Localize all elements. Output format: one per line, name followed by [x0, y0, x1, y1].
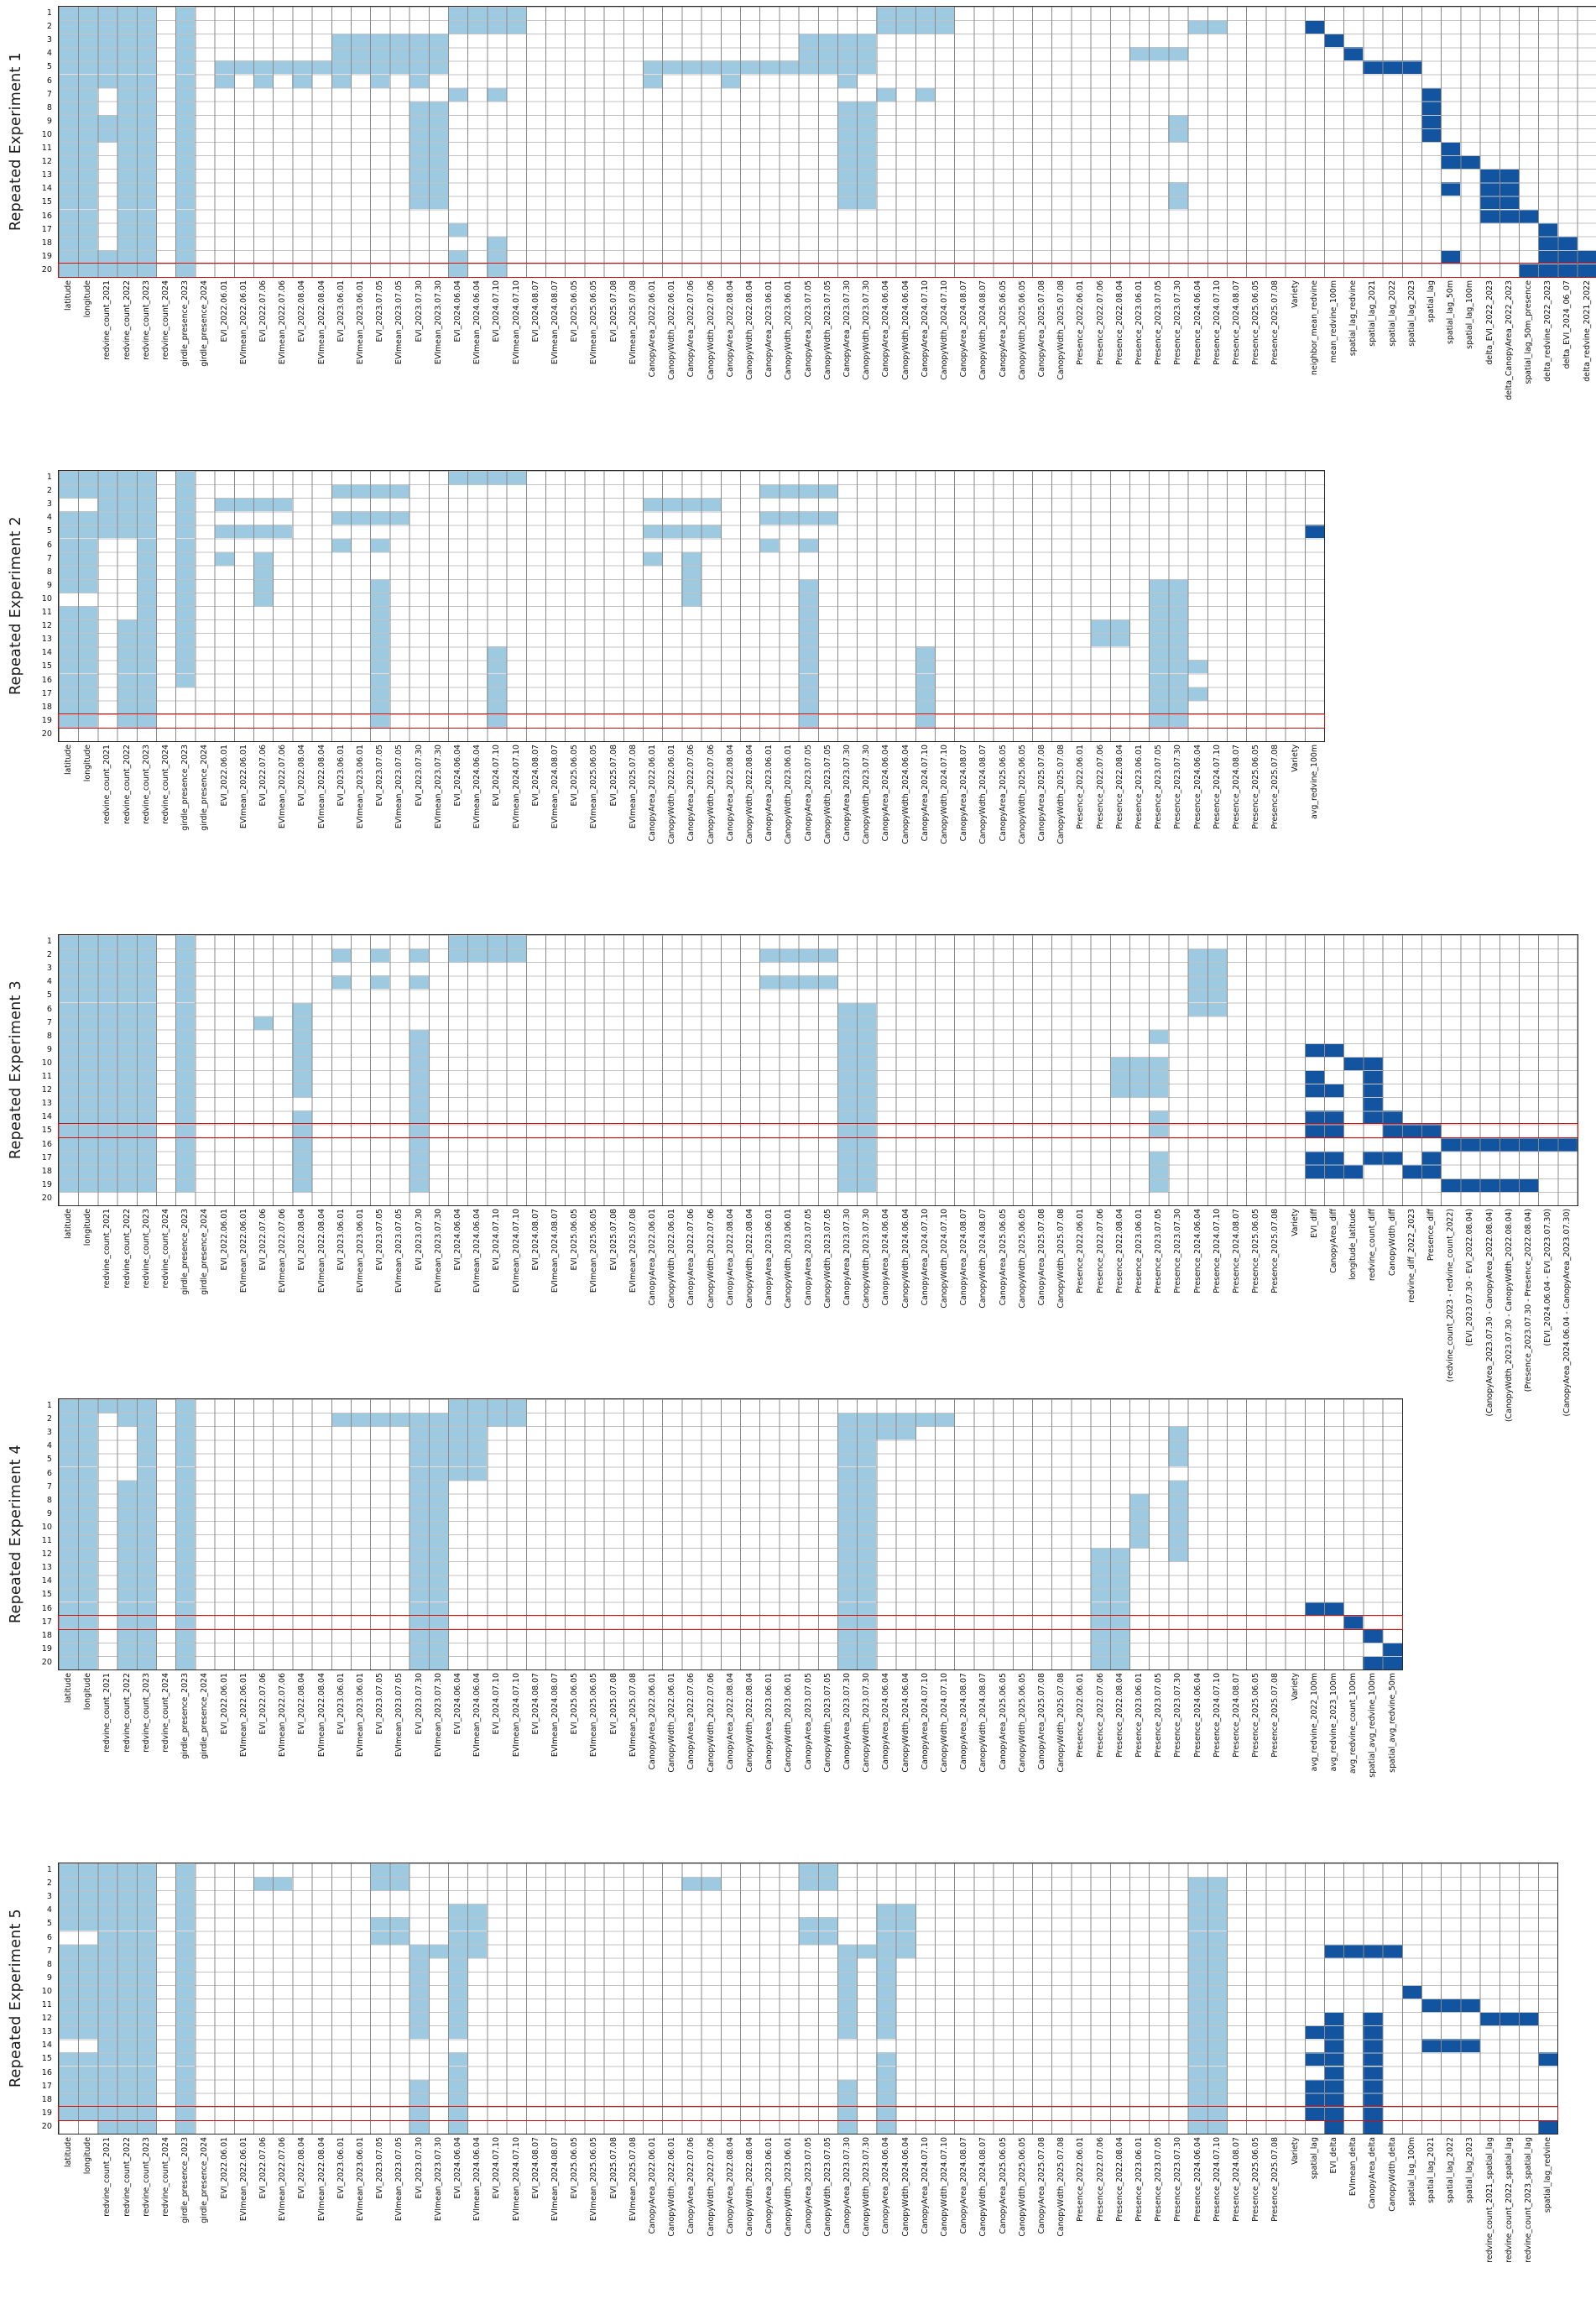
column-label: spatial_lag_2021: [1421, 2137, 1441, 2203]
heatmap-cell-light: [253, 75, 273, 88]
heatmap-cell-light: [915, 646, 935, 660]
heatmap-cell-dark: [1441, 1138, 1577, 1152]
column-label-text: EVImean_2022.07.06: [278, 1673, 287, 1757]
column-label-text: CanopyArea_2025.07.08: [1037, 2137, 1046, 2234]
column-label: CanopyArea_delta: [1363, 2137, 1382, 2208]
heatmap-cell-light: [59, 606, 97, 619]
row-label: 3: [47, 34, 52, 47]
column-label: EVI_2023.06.01: [331, 2137, 351, 2198]
column-label-text: CanopyArea_2025.06.05: [999, 2137, 1008, 2234]
column-label-text: Presence_2022.07.06: [1096, 2137, 1105, 2222]
column-label: CanopyArea_2024.06.04: [876, 1673, 895, 1769]
column-label: CanopyWdth_2023.07.30: [857, 1673, 876, 1773]
heatmap-cell-light: [59, 660, 97, 673]
heatmap-cell-light: [837, 2120, 857, 2134]
heatmap-cell-dark: [1363, 2107, 1382, 2120]
column-label: EVI_diff: [1305, 1209, 1324, 1238]
heatmap-cell-light: [175, 579, 195, 593]
panel-title-text: Repeated Experiment 2: [8, 516, 24, 695]
column-label: EVImean_2022.08.04: [312, 745, 331, 828]
heatmap-cell-light: [292, 1165, 311, 1178]
heatmap-cell-light: [837, 1643, 876, 1656]
heatmap-cell-light: [1188, 1904, 1227, 1917]
column-label: CanopyArea_2023.07.05: [799, 1673, 818, 1769]
column-label-text: EVImean_2024.07.10: [512, 2137, 521, 2221]
heatmap-cell-light: [1168, 182, 1187, 196]
heatmap-cell-light: [59, 1575, 97, 1588]
heatmap-cell-dark: [1363, 1110, 1401, 1124]
heatmap-cell-light: [215, 498, 293, 511]
column-label-text: Presence_2022.06.01: [1076, 1209, 1085, 1293]
column-label: CanopyWdth_2025.07.08: [1051, 280, 1071, 380]
column-label: CanopyArea_2022.08.04: [721, 280, 740, 377]
column-label-text: Presence_2024.08.07: [1232, 1673, 1241, 1758]
column-label-text: CanopyArea_2024.06.04: [881, 745, 890, 841]
heatmap-cell-light: [175, 1440, 195, 1453]
heatmap-cell-light: [117, 88, 156, 102]
column-label: EVI_2023.07.30: [409, 1673, 429, 1734]
column-label-text: spatial_lag: [1426, 280, 1436, 322]
column-label-text: EVI_2022.07.06: [258, 2137, 268, 2198]
column-label-text: EVImean_2022.06.01: [239, 1673, 248, 1757]
column-label: EVImean_2025.07.08: [623, 745, 643, 828]
heatmap-cell-light: [175, 962, 195, 975]
column-label-text: CanopyArea_2022.06.01: [648, 280, 657, 377]
column-label: spatial_lag_redvine: [1343, 280, 1363, 356]
heatmap-cell-dark: [1421, 1999, 1480, 2012]
column-label: CanopyWdth_2024.07.10: [935, 280, 954, 380]
heatmap-cell-light: [448, 2120, 467, 2134]
row-label: 10: [42, 1985, 52, 1999]
heatmap-cell-light: [59, 1440, 97, 1453]
column-label: EVI_2023.06.01: [331, 745, 351, 806]
column-label-text: (redvine_count_2023 - redvine_count_2022…: [1446, 1209, 1455, 1382]
heatmap-cell-light: [175, 250, 195, 264]
column-label-text: EVI_2023.06.01: [336, 1673, 346, 1734]
column-label-text: EVI_2024.07.10: [492, 1209, 501, 1270]
panel-title-text: Repeated Experiment 3: [8, 980, 24, 1159]
heatmap-cell-light: [1149, 1165, 1168, 1178]
column-label: Presence_2024.08.07: [1227, 1209, 1246, 1293]
heatmap-cell-light: [837, 1467, 876, 1481]
heatmap-cell-light: [1168, 1548, 1187, 1561]
heatmap-cell-dark: [1480, 182, 1519, 196]
heatmap-cell-light: [59, 687, 97, 701]
heatmap-cell-dark: [1305, 525, 1324, 538]
column-label-text: EVImean_2022.08.04: [317, 2137, 326, 2221]
heatmap-cell-light: [137, 593, 156, 606]
column-label: latitude: [59, 280, 78, 311]
column-label: Presence_2022.08.04: [1110, 2137, 1129, 2222]
column-label: longitude: [78, 1209, 97, 1246]
heatmap-cell-light: [175, 88, 195, 102]
column-label-text: CanopyArea_2022.07.06: [686, 280, 696, 377]
heatmap-cell-light: [409, 1507, 448, 1521]
column-label: CanopyWdth_2023.07.05: [818, 745, 837, 844]
heatmap-cell-light: [253, 579, 273, 593]
heatmap-cell-dark: [1538, 2120, 1557, 2134]
heatmap-cell-light: [799, 606, 818, 619]
heatmap-cell-light: [175, 142, 195, 155]
heatmap-cell-dark: [1305, 1602, 1343, 1616]
column-label-text: CanopyWdth_2025.06.05: [1018, 1673, 1027, 1773]
column-label-text: CanopyWdth_2022.07.06: [707, 1673, 716, 1773]
column-label: Presence_2024.06.04: [1188, 745, 1207, 829]
heatmap-cell-light: [370, 75, 389, 88]
column-label-text: CanopyWdth_2023.07.30: [862, 745, 871, 844]
heatmap-cell-light: [799, 714, 818, 728]
row-axis: 1234567891011121314151617181920: [35, 935, 57, 1205]
row-label: 17: [42, 687, 52, 701]
heatmap-cell-light: [97, 2120, 156, 2134]
column-label-text: EVImean_2024.08.07: [550, 745, 560, 828]
column-label-text: redvine_count_2022: [123, 2137, 132, 2217]
heatmap-cell-light: [876, 1972, 895, 1985]
heatmap-cell-light: [409, 1467, 488, 1481]
column-label-text: EVI_2023.07.30: [415, 280, 424, 342]
heatmap-cell-light: [837, 1481, 876, 1494]
heatmap-cell-light: [409, 1138, 429, 1152]
column-label: EVI_2025.07.08: [604, 1209, 623, 1270]
column-label: EVImean_2025.06.05: [584, 1209, 603, 1293]
column-label: CanopyWdth_2022.07.06: [702, 280, 721, 380]
column-label-text: (CanopyArea_2023.07.30 - CanopyArea_2022…: [1485, 1209, 1494, 1416]
heatmap-cell-light: [175, 1453, 195, 1466]
heatmap-cell-light: [837, 1453, 876, 1466]
column-label-text: CanopyWdth_2022.06.01: [667, 1209, 676, 1309]
column-label-text: EVImean_2023.07.05: [394, 1209, 404, 1293]
column-label: avg_redvine_100m: [1305, 745, 1324, 819]
column-label-text: longitude: [83, 280, 92, 317]
heatmap-cell-light: [409, 1643, 448, 1656]
column-label-text: EVI_2022.08.04: [297, 1673, 306, 1734]
column-label: CanopyArea_2025.06.05: [994, 1673, 1013, 1769]
column-label-text: Presence_2025.06.05: [1251, 1209, 1260, 1293]
heatmap-cell-light: [97, 2039, 156, 2052]
column-label: girdle_presence_2023: [175, 745, 195, 831]
panel-title-text: Repeated Experiment 1: [8, 52, 24, 231]
heatmap-cell-light: [409, 142, 448, 155]
heatmap-cell-light: [681, 579, 701, 593]
heatmap-cell-light: [409, 1426, 488, 1440]
column-label-text: EVI_2024.08.07: [531, 1209, 540, 1270]
heatmap-cell-light: [837, 102, 876, 115]
column-label-text: EVImean_2025.06.05: [589, 1673, 598, 1757]
column-label: Presence_2024.06.04: [1188, 1673, 1207, 1758]
heatmap-cell-light: [59, 633, 97, 646]
heatmap-cell-dark: [1363, 1629, 1382, 1643]
heatmap-cell-light: [370, 714, 389, 728]
column-label: avg_redvine_count_100m: [1343, 1673, 1363, 1774]
heatmap-cell-light: [292, 1178, 311, 1192]
heatmap-cell-light: [799, 539, 818, 552]
column-label-text: CanopyWdth_2024.07.10: [940, 745, 949, 844]
heatmap-cell-dark: [1343, 1057, 1382, 1070]
column-axis: latitudelongituderedvine_count_2021redvi…: [59, 280, 1596, 471]
heatmap-cell-light: [59, 2107, 156, 2120]
heatmap-cell-light: [97, 498, 156, 511]
heatmap-cell-light: [1188, 1917, 1227, 1931]
column-label: EVImean_2023.07.30: [429, 1209, 448, 1293]
column-label-text: girdle_presence_2024: [200, 745, 209, 831]
column-label: spatial_lag_2021: [1363, 280, 1382, 347]
column-label-text: Presence_2024.08.07: [1232, 1209, 1241, 1293]
column-label-text: CanopyWdth_2022.06.01: [667, 2137, 676, 2237]
heatmap-cell-light: [175, 182, 195, 196]
column-label-text: Presence_2023.07.30: [1173, 280, 1182, 365]
column-label-text: spatial_lag_100m: [1407, 2137, 1416, 2206]
column-label-text: spatial_lag_redvine: [1543, 2137, 1552, 2213]
column-label: CanopyWdth_2024.06.04: [896, 1673, 915, 1773]
heatmap-cell-light: [837, 1616, 876, 1629]
column-label-text: CanopyWdth_diff: [1388, 1209, 1397, 1276]
heatmap-cell-light: [837, 1138, 876, 1152]
row-label: 18: [42, 701, 52, 714]
column-label: (CanopyArea_2024.06.04 - CanopyArea_2023…: [1557, 1209, 1577, 1416]
column-label-text: CanopyWdth_2024.08.07: [978, 745, 988, 844]
column-label: Variety: [1286, 2137, 1305, 2165]
heatmap-cell-light: [409, 1084, 429, 1097]
column-label: CanopyWdth_2024.08.07: [973, 2137, 993, 2237]
column-label: Variety: [1286, 1673, 1305, 1701]
heatmap-cell-dark: [1324, 2012, 1343, 2025]
column-label-text: CanopyArea_2023.07.05: [804, 1209, 813, 1305]
column-label: Presence_2023.07.05: [1149, 2137, 1168, 2222]
heatmap-cell-light: [837, 169, 876, 182]
column-label: EVI_2025.07.08: [604, 280, 623, 342]
column-label: EVI_2024.08.07: [526, 1209, 545, 1270]
heatmap-cell-light: [370, 619, 389, 633]
heatmap-cell-light: [1149, 579, 1187, 593]
column-label-text: Presence_2022.07.06: [1096, 280, 1105, 365]
heatmap-cell-light: [1188, 1003, 1227, 1016]
heatmap-cell-light: [837, 1043, 876, 1057]
column-label: Presence_2025.06.05: [1246, 1673, 1265, 1758]
heatmap-cell-light: [837, 1945, 915, 1958]
column-label-text: CanopyWdth_2022.08.04: [745, 1673, 754, 1773]
column-label: girdle_presence_2023: [175, 2137, 195, 2223]
heatmap-cell-light: [175, 2012, 195, 2025]
heatmap-cell-light: [175, 7, 195, 20]
column-label: EVI_2023.07.05: [370, 1673, 389, 1734]
column-label: redvine_count_2021: [97, 745, 117, 824]
row-label: 11: [42, 142, 52, 155]
column-label-text: latitude: [64, 2137, 73, 2167]
column-label: EVI_2023.06.01: [331, 1209, 351, 1270]
heatmap-cell-light: [137, 606, 156, 619]
heatmap-cell-light: [175, 606, 195, 619]
heatmap-cell-light: [409, 1030, 429, 1043]
row-axis: 1234567891011121314151617181920: [35, 1399, 57, 1669]
column-label: CanopyArea_2022.07.06: [681, 1673, 701, 1769]
column-axis: latitudelongituderedvine_count_2021redvi…: [59, 1673, 1402, 1863]
heatmap-cell-light: [1149, 1030, 1168, 1043]
column-label: CanopyArea_2025.06.05: [994, 280, 1013, 377]
column-label: CanopyArea_2023.07.30: [837, 2137, 857, 2234]
heatmap-cell-dark: [1421, 115, 1441, 128]
column-label: CanopyWdth_2025.07.08: [1051, 1673, 1071, 1773]
column-label: redvine_count_2021: [97, 1673, 117, 1753]
column-label-text: EVImean_2024.07.10: [512, 1209, 521, 1293]
column-label: CanopyArea_2023.07.05: [799, 280, 818, 377]
column-label: spatial_lag_2023: [1460, 2137, 1479, 2203]
heatmap-cell-light: [1149, 646, 1187, 660]
column-label-text: EVI_2024.08.07: [531, 745, 540, 806]
heatmap-cell-light: [409, 169, 448, 182]
heatmap-cell-light: [59, 1124, 156, 1137]
heatmap-cell-light: [59, 155, 97, 169]
heatmap-cell-light: [59, 102, 97, 115]
heatmap-cell-light: [59, 1534, 97, 1548]
column-label: EVI_2022.07.06: [253, 2137, 273, 2198]
heatmap-cell-light: [59, 1958, 156, 1972]
heatmap-cell-light: [117, 1616, 156, 1629]
heatmap-cell-light: [215, 525, 293, 538]
heatmap-cell-light: [837, 1030, 876, 1043]
column-label: CanopyArea_2022.07.06: [681, 280, 701, 377]
column-label: Variety: [1286, 745, 1305, 772]
column-label-text: neighbor_mean_redvine: [1310, 280, 1319, 375]
row-label: 8: [47, 102, 52, 115]
heatmap-cell-light: [59, 1003, 156, 1016]
heatmap-cell-light: [409, 1958, 429, 1972]
column-label-text: delta_redvine_2021_2022: [1583, 280, 1592, 382]
column-label: EVImean_2023.06.01: [351, 1209, 370, 1293]
heatmap-cell-light: [759, 511, 837, 525]
heatmap-cell-light: [137, 566, 156, 579]
column-label: CanopyArea_2022.06.01: [643, 2137, 662, 2234]
column-label-text: CanopyArea_2024.07.10: [921, 745, 930, 841]
column-label-text: avg_redvine_2023_100m: [1329, 1673, 1338, 1771]
heatmap-cell-light: [837, 155, 876, 169]
heatmap-cell-light: [1188, 1958, 1227, 1972]
column-label-text: CanopyWdth_2025.07.08: [1056, 280, 1066, 380]
heatmap-cell-light: [409, 1521, 448, 1534]
column-label-text: spatial_lag_2023: [1465, 2137, 1474, 2203]
column-label-text: CanopyArea_2022.07.06: [686, 1673, 696, 1769]
heatmap-cell-light: [59, 1110, 156, 1124]
column-label-text: CanopyWdth_2024.07.10: [940, 2137, 949, 2237]
heatmap-cell-light: [59, 1399, 156, 1413]
column-label: mean_redvine_100m: [1324, 280, 1343, 363]
heatmap-cell-light: [117, 182, 156, 196]
heatmap-cell-light: [292, 1030, 311, 1043]
heatmap-cell-light: [837, 1440, 876, 1453]
heatmap-cell-light: [175, 155, 195, 169]
column-label-text: EVI_2024.07.10: [492, 745, 501, 806]
heatmap-cell-light: [409, 1629, 448, 1643]
heatmap-cell-dark: [1305, 2093, 1343, 2107]
heatmap-cell-light: [1188, 948, 1227, 962]
heatmap-cell-light: [759, 484, 837, 498]
heatmap-cell-light: [59, 1165, 156, 1178]
column-label-text: (CanopyArea_2024.06.04 - CanopyArea_2023…: [1562, 1209, 1572, 1416]
heatmap-cell-light: [1110, 1084, 1169, 1097]
heatmap-cell-light: [799, 1931, 837, 1945]
column-label-text: CanopyArea_2023.07.30: [842, 280, 852, 377]
heatmap-cell-light: [1188, 975, 1227, 989]
heatmap-cell-light: [1188, 2107, 1227, 2120]
column-label-text: CanopyWdth_2022.06.01: [667, 745, 676, 844]
column-label-text: EVImean_2023.07.05: [394, 280, 404, 364]
column-label: CanopyWdth_2024.07.10: [935, 1209, 954, 1309]
heatmap-cell-dark: [1305, 1124, 1343, 1137]
heatmap-cell-light: [175, 1507, 195, 1521]
heatmap-cell-light: [117, 701, 156, 714]
column-label: CanopyArea_2025.07.08: [1032, 1673, 1051, 1769]
heatmap-cell-light: [876, 2093, 895, 2107]
heatmap-cell-light: [117, 155, 156, 169]
row-label: 10: [42, 128, 52, 142]
heatmap-cell-dark: [1305, 1152, 1343, 1165]
column-label: Presence_2025.07.08: [1265, 2137, 1285, 2222]
column-label-text: CanopyWdth_2022.07.06: [707, 1209, 716, 1309]
heatmap-cell-light: [175, 1521, 195, 1534]
column-label-text: redvine_count_2021: [102, 1673, 112, 1753]
column-label-text: CanopyWdth_2022.08.04: [745, 2137, 754, 2237]
column-label-text: EVI_2023.07.05: [375, 745, 384, 806]
heatmap-cell-light: [1188, 687, 1207, 701]
column-label: EVImean_2023.07.30: [429, 745, 448, 828]
column-label: EVImean_2023.07.30: [429, 280, 448, 364]
column-label: redvine_count_2023: [137, 2137, 156, 2217]
column-label: CanopyArea_2023.06.01: [759, 280, 779, 377]
column-label: CanopyWdth_2024.08.07: [973, 745, 993, 844]
column-label: Presence_2023.07.30: [1168, 280, 1187, 365]
row-label: 12: [42, 619, 52, 633]
heatmap-cell-dark: [1305, 1110, 1343, 1124]
heatmap-cell-light: [1188, 1890, 1227, 1904]
heatmap-cell-dark: [1441, 250, 1460, 264]
column-label: EVImean_2024.08.07: [545, 1209, 565, 1293]
heatmap-cell-light: [175, 1643, 195, 1656]
heatmap-cell-light: [681, 593, 701, 606]
column-label: CanopyWdth_2022.07.06: [702, 745, 721, 844]
column-label-text: CanopyArea_2022.06.01: [648, 1673, 657, 1769]
column-label-text: CanopyArea_2025.07.08: [1037, 280, 1046, 377]
column-label-text: EVImean_2024.06.04: [472, 745, 482, 828]
column-label: EVImean_2024.07.10: [507, 2137, 526, 2221]
row-label: 11: [42, 1070, 52, 1084]
column-label: EVI_2022.06.01: [215, 1209, 234, 1270]
column-label-text: CanopyArea_2022.06.01: [648, 2137, 657, 2234]
column-label: EVI_2022.08.04: [292, 1673, 311, 1734]
column-label: CanopyWdth_2022.07.06: [702, 2137, 721, 2237]
column-label: EVImean_2024.06.04: [467, 280, 487, 364]
column-label-text: CanopyWdth_2025.07.08: [1056, 1673, 1066, 1773]
column-label: EVI_2022.07.06: [253, 1673, 273, 1734]
heatmap-cell-light: [117, 1575, 156, 1588]
column-label: CanopyArea_2025.06.05: [994, 2137, 1013, 2234]
heatmap-cell-light: [837, 1534, 876, 1548]
column-label: Presence_2022.06.01: [1071, 2137, 1090, 2222]
heatmap-cell-light: [448, 948, 526, 962]
column-label-text: CanopyWdth_2023.07.30: [862, 1673, 871, 1773]
column-label-text: CanopyArea_2025.06.05: [999, 280, 1008, 377]
heatmap-cell-light: [409, 1097, 429, 1110]
column-label-text: EVI_2023.06.01: [336, 2137, 346, 2198]
heatmap-cell-light: [1091, 1588, 1129, 1602]
column-label: spatial_avg_redvine_100m: [1363, 1673, 1382, 1778]
column-label-text: redvine_count_2021: [102, 1209, 112, 1288]
column-label: EVImean_2025.06.05: [584, 1673, 603, 1757]
row-label: 13: [42, 1561, 52, 1575]
column-label: Presence_2025.06.05: [1246, 1209, 1265, 1293]
heatmap-cell-light: [331, 1413, 526, 1426]
heatmap-cell-light: [59, 539, 97, 552]
row-label: 7: [47, 1481, 52, 1494]
row-label: 4: [47, 511, 52, 525]
